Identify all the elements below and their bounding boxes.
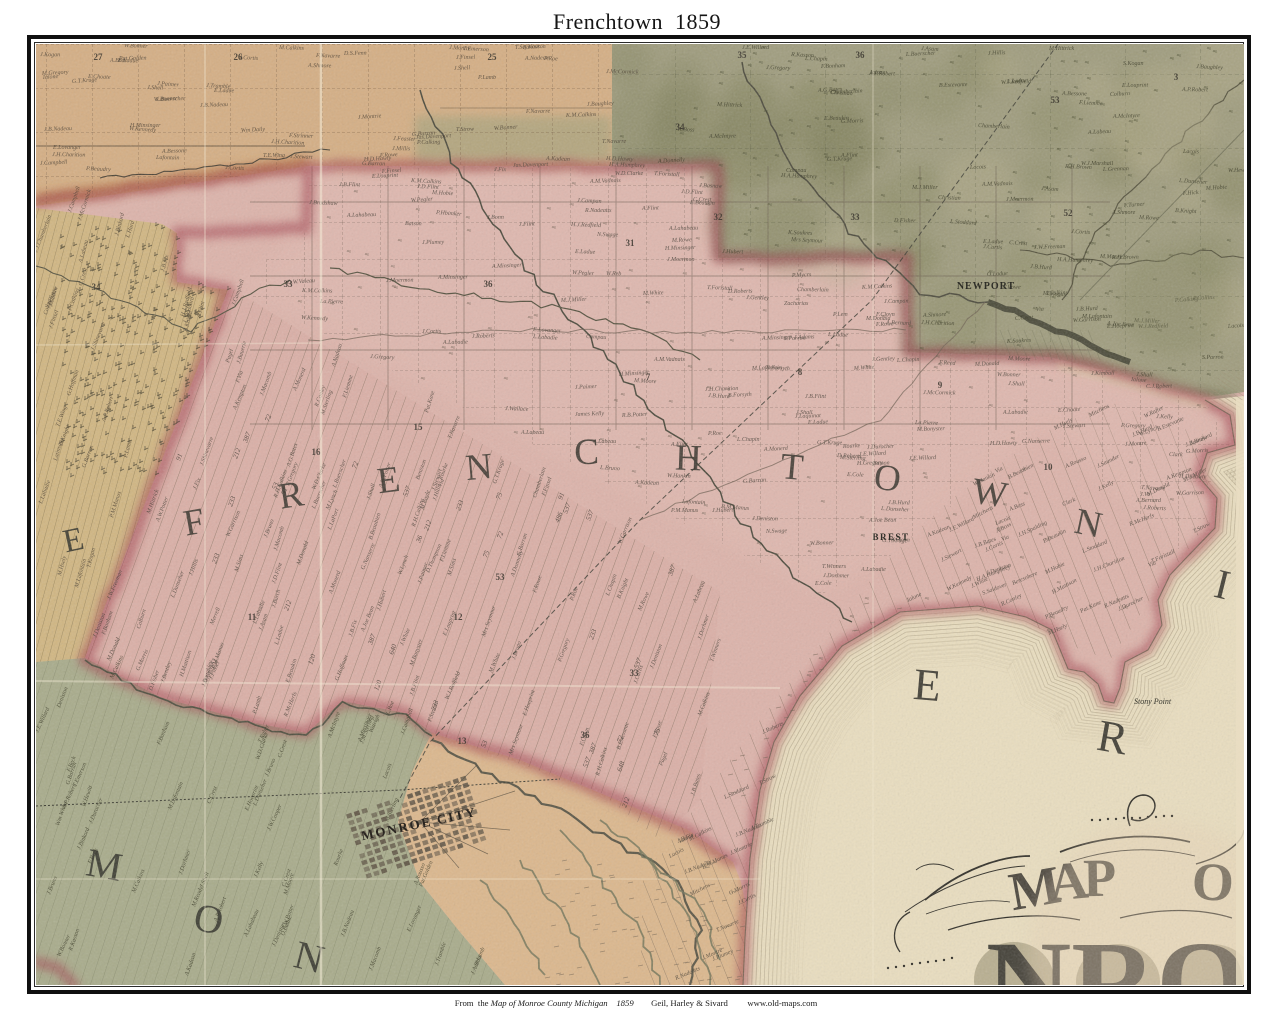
svg-text:Frenchtown 1859: Frenchtown 1859 — [553, 9, 721, 34]
svg-text:From the Map of Monroe County: From the Map of Monroe County Michigan 1… — [455, 998, 818, 1008]
